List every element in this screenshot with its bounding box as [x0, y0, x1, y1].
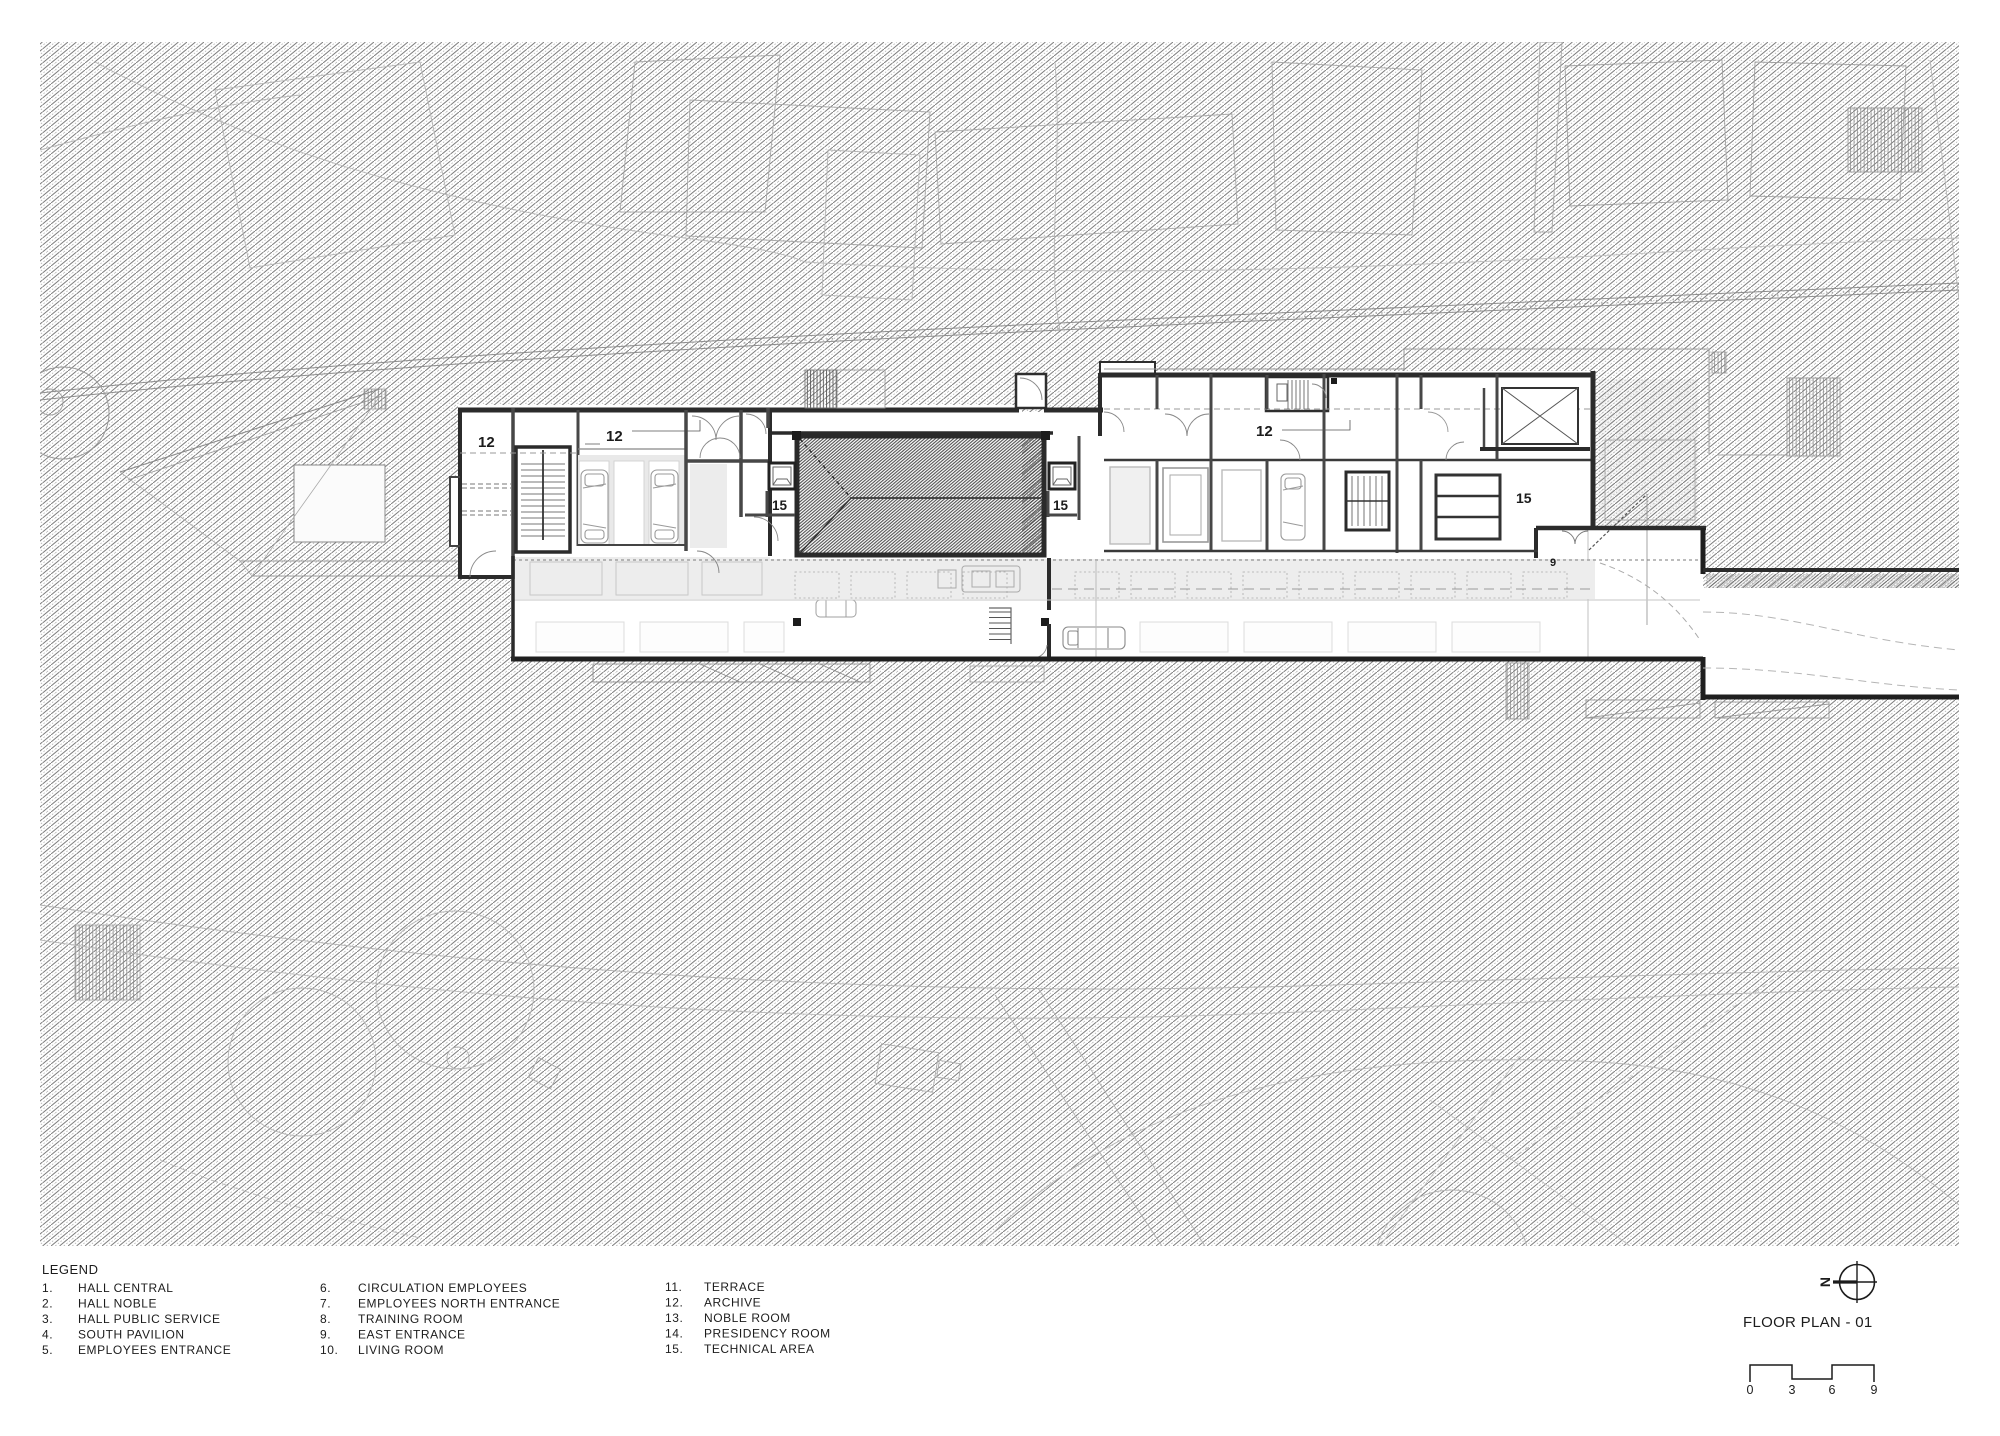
svg-text:TECHNICAL AREA: TECHNICAL AREA	[704, 1342, 815, 1356]
svg-text:CIRCULATION EMPLOYEES: CIRCULATION EMPLOYEES	[358, 1281, 527, 1295]
svg-text:9: 9	[1550, 557, 1556, 569]
svg-text:0: 0	[1747, 1383, 1754, 1397]
svg-text:9: 9	[1871, 1383, 1878, 1397]
svg-text:PRESIDENCY ROOM: PRESIDENCY ROOM	[704, 1327, 831, 1341]
svg-text:N: N	[1817, 1277, 1833, 1287]
svg-text:12.: 12.	[665, 1296, 683, 1310]
svg-text:EMPLOYEES ENTRANCE: EMPLOYEES ENTRANCE	[78, 1343, 231, 1357]
svg-text:6: 6	[1829, 1383, 1836, 1397]
svg-text:14.: 14.	[665, 1327, 683, 1341]
svg-text:SOUTH PAVILION: SOUTH PAVILION	[78, 1328, 185, 1342]
svg-text:8.: 8.	[320, 1312, 331, 1326]
svg-text:15: 15	[1053, 498, 1069, 513]
svg-text:3: 3	[1789, 1383, 1796, 1397]
svg-text:EMPLOYEES NORTH ENTRANCE: EMPLOYEES NORTH ENTRANCE	[358, 1297, 560, 1311]
svg-text:LIVING ROOM: LIVING ROOM	[358, 1343, 444, 1357]
svg-text:HALL CENTRAL: HALL CENTRAL	[78, 1281, 174, 1295]
svg-text:3.: 3.	[42, 1312, 53, 1326]
svg-text:EAST ENTRANCE: EAST ENTRANCE	[358, 1328, 466, 1342]
svg-text:15: 15	[1516, 490, 1532, 506]
svg-text:9.: 9.	[320, 1328, 331, 1342]
svg-text:LEGEND: LEGEND	[42, 1262, 98, 1277]
svg-text:HALL PUBLIC SERVICE: HALL PUBLIC SERVICE	[78, 1312, 221, 1326]
svg-text:11.: 11.	[665, 1280, 682, 1294]
svg-text:12: 12	[1256, 423, 1273, 440]
svg-text:12: 12	[606, 428, 623, 445]
svg-text:2.: 2.	[42, 1297, 53, 1311]
svg-text:HALL NOBLE: HALL NOBLE	[78, 1297, 157, 1311]
svg-text:13.: 13.	[665, 1311, 683, 1325]
svg-text:4.: 4.	[42, 1328, 53, 1342]
svg-text:7.: 7.	[320, 1297, 331, 1311]
svg-text:TRAINING ROOM: TRAINING ROOM	[358, 1312, 463, 1326]
svg-text:15.: 15.	[665, 1342, 683, 1356]
svg-text:ARCHIVE: ARCHIVE	[704, 1296, 761, 1310]
svg-text:NOBLE ROOM: NOBLE ROOM	[704, 1311, 791, 1325]
svg-text:10.: 10.	[320, 1343, 338, 1357]
svg-text:6.: 6.	[320, 1281, 331, 1295]
svg-text:1.: 1.	[42, 1281, 53, 1295]
svg-text:TERRACE: TERRACE	[704, 1280, 765, 1294]
svg-text:15: 15	[772, 498, 788, 513]
svg-text:5.: 5.	[42, 1343, 53, 1357]
svg-text:12: 12	[478, 434, 495, 451]
svg-text:FLOOR PLAN - 01: FLOOR PLAN - 01	[1743, 1314, 1873, 1331]
